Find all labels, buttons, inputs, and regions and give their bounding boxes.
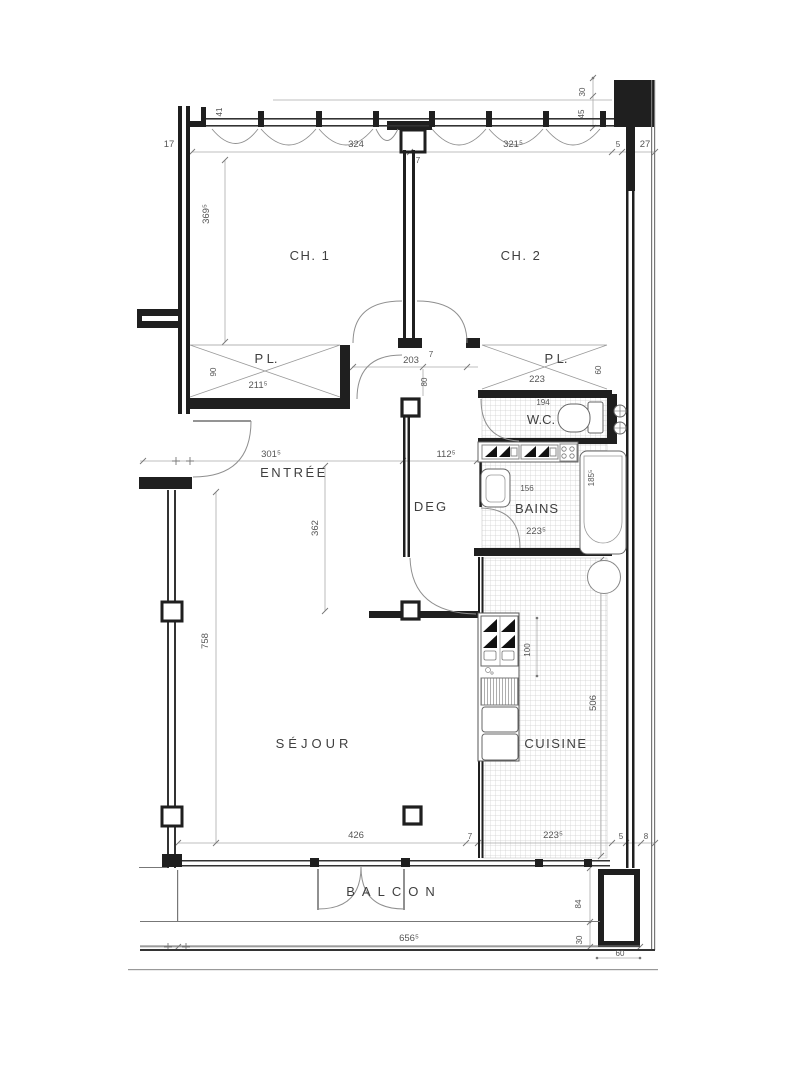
dim-203: 203 — [403, 355, 419, 366]
dim-506: 506 — [588, 695, 599, 711]
dim-27-col: 27 — [640, 139, 651, 150]
sink-icon-2 — [482, 734, 518, 760]
dim-112-5: 112⁵ — [436, 449, 455, 460]
top-right-column — [614, 80, 655, 127]
door-swings — [193, 301, 520, 910]
dim-426: 426 — [348, 830, 364, 841]
dim-84: 84 — [574, 899, 583, 908]
dim-17: 17 — [164, 139, 175, 150]
room-label-bains: BAINS — [515, 501, 559, 516]
sink-icon — [482, 707, 518, 732]
dim-758: 758 — [200, 633, 211, 649]
post-kitchen — [402, 602, 419, 619]
water-heater-icon — [588, 561, 621, 594]
drainer-icon — [481, 678, 518, 705]
wc-east-wall — [607, 394, 617, 440]
dim-5-bottom: 5 — [619, 832, 624, 841]
balcony-outline — [128, 867, 658, 970]
south-window-line — [180, 860, 610, 862]
dim-223-5-bains: 223⁵ — [526, 526, 546, 537]
dim-41: 41 — [215, 107, 224, 116]
pl-right-bottom-wall — [478, 390, 612, 398]
dim-7-wall: 7 — [429, 350, 434, 359]
post-deg — [402, 399, 419, 416]
dim-45-col: 45 — [577, 109, 586, 118]
deg-wall — [403, 416, 406, 557]
dim-362: 362 — [310, 520, 321, 536]
bedroom-divider-wall — [403, 150, 406, 342]
bathtub-icon — [580, 451, 626, 554]
room-label-ch2: CH. 2 — [501, 248, 542, 263]
dim-194: 194 — [536, 398, 550, 407]
dim-80: 80 — [420, 377, 429, 386]
room-label-ch1: CH. 1 — [290, 248, 331, 263]
dim-185-5: 185⁵ — [587, 470, 596, 487]
room-label-pl-right: P L. — [545, 351, 568, 366]
dim-30-balcon: 30 — [575, 935, 584, 944]
dim-30-col: 30 — [578, 87, 587, 96]
facade-outer-line — [651, 80, 652, 950]
dim-369-5: 369⁵ — [201, 204, 212, 224]
dim-301-5: 301⁵ — [261, 449, 281, 460]
room-label-entree: ENTRÉE — [260, 465, 328, 480]
floor-plan-drawing: CH. 1 CH. 2 P L. P L. W.C. BAINS ENTRÉE … — [0, 0, 798, 1080]
dim-7-bottom: 7 — [468, 832, 473, 841]
dim-5-col: 5 — [616, 140, 621, 149]
dim-60-pl: 60 — [594, 365, 603, 374]
dim-656-5: 656⁵ — [399, 933, 419, 944]
post-sejour — [404, 807, 421, 824]
party-wall-stub — [137, 309, 180, 316]
bottom-right-column — [601, 872, 637, 944]
room-label-balcon: BALCON — [346, 884, 441, 899]
dim-60-bottom: 60 — [616, 949, 625, 958]
dim-321-5: 321⁵ — [503, 139, 523, 150]
sejour-kitchen-wall — [369, 611, 402, 618]
dim-8-bottom: 8 — [644, 832, 649, 841]
room-label-deg: DEG — [414, 499, 448, 514]
floor-plan-canvas: CH. 1 CH. 2 P L. P L. W.C. BAINS ENTRÉE … — [0, 0, 798, 1080]
dim-156: 156 — [520, 484, 534, 493]
door-entry — [193, 421, 251, 477]
room-label-pl-left: P L. — [255, 351, 278, 366]
pl-left-side-wall — [340, 345, 350, 401]
door-ch1 — [353, 301, 402, 343]
dim-324: 324 — [348, 139, 364, 150]
door-ch2 — [417, 301, 467, 343]
room-label-sejour: SÉJOUR — [276, 736, 353, 751]
door-corridor — [357, 355, 402, 399]
room-label-wc: W.C. — [527, 412, 555, 427]
pl-left-bottom-wall — [189, 398, 350, 409]
dim-223-5-cuisine: 223⁵ — [543, 830, 563, 841]
toilet-bowl-icon — [558, 404, 590, 432]
room-label-cuisine: CUISINE — [524, 736, 587, 751]
dim-223: 223 — [529, 374, 545, 385]
dim-7-top: 7 — [416, 156, 421, 165]
dim-100: 100 — [523, 643, 532, 657]
entry-stub-wall — [139, 477, 192, 489]
dim-211-5: 211⁵ — [248, 380, 267, 391]
dim-90: 90 — [209, 367, 218, 376]
